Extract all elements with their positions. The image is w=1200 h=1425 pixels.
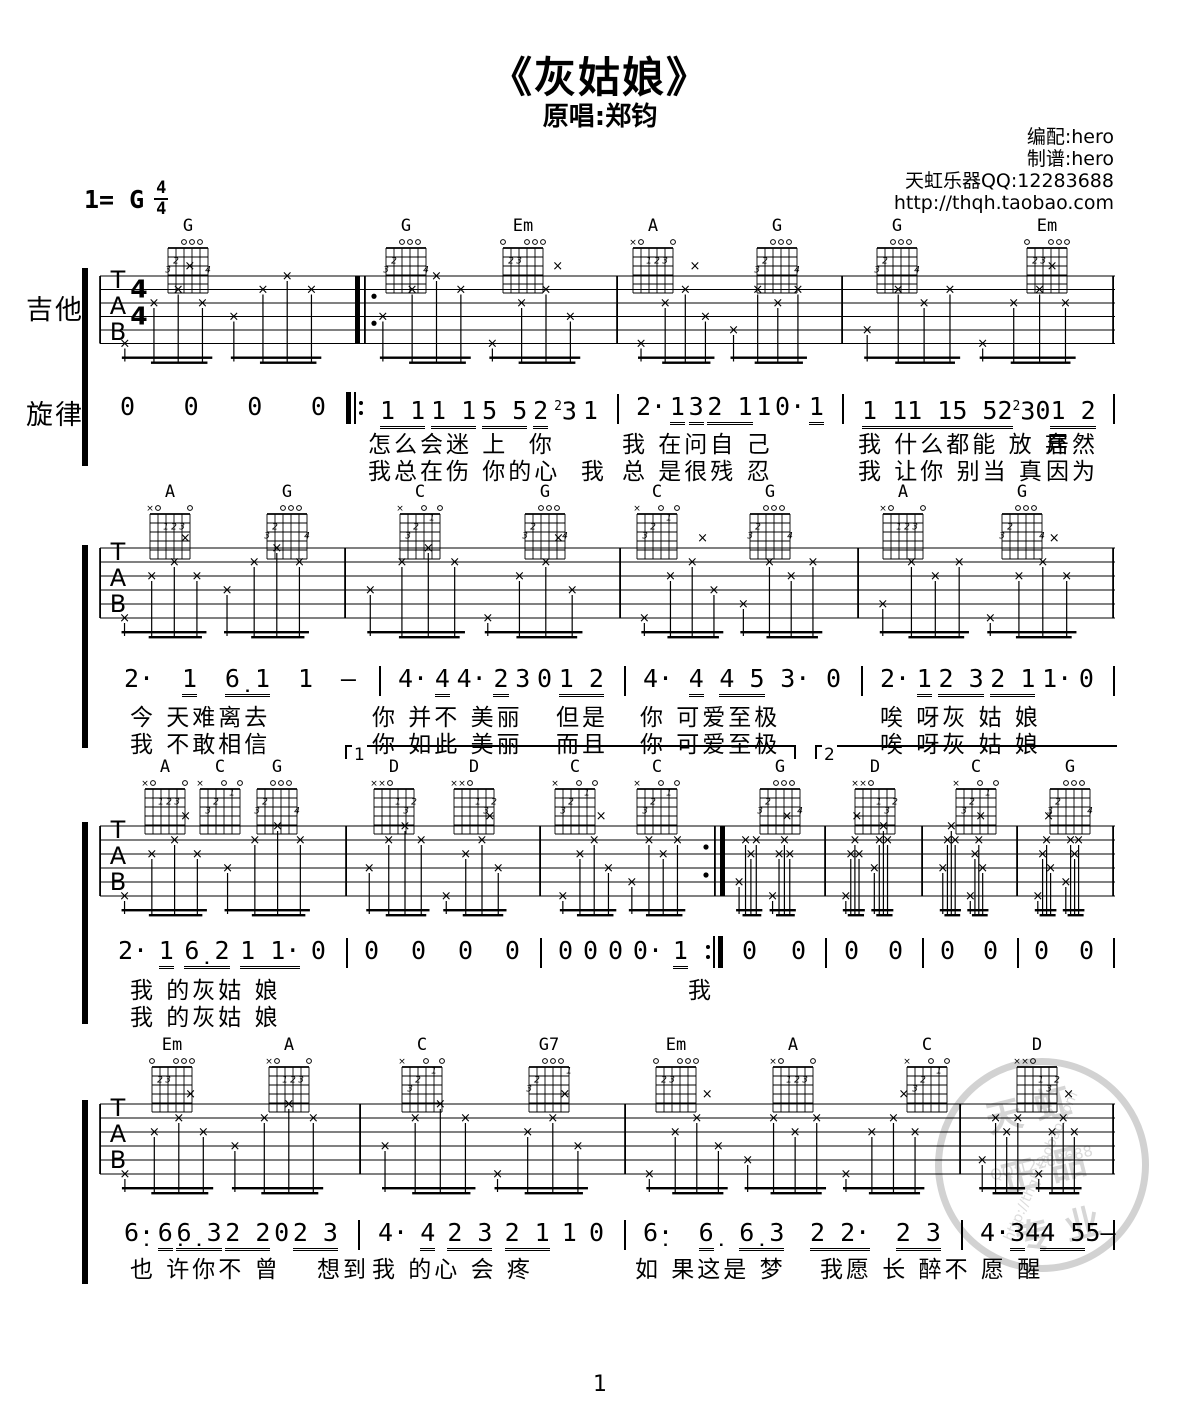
melody-note-group: 0·: [633, 936, 663, 966]
svg-text:×: ×: [633, 779, 641, 789]
svg-text:×: ×: [851, 809, 862, 824]
key-signature: 1= G 4 4: [84, 180, 168, 218]
svg-text:1: 1: [229, 789, 235, 799]
chord-name: A: [261, 1037, 317, 1053]
svg-text:×: ×: [398, 1057, 406, 1067]
melody-barline: [617, 394, 619, 424]
chord-name: D: [847, 759, 903, 775]
svg-text:×: ×: [184, 259, 195, 274]
melody-measure: 4·42 32 110: [366, 1218, 616, 1252]
melody-measure: 6̣·6̣6̣ 32 202 3: [112, 1218, 350, 1252]
melody-barline: [1113, 938, 1115, 968]
svg-text:×: ×: [859, 779, 867, 789]
chord-name: A: [137, 759, 193, 775]
svg-text:×: ×: [903, 1057, 911, 1067]
melody-note-group: 1: [583, 396, 598, 426]
chord-name: C: [899, 1037, 955, 1053]
chord-name: C: [629, 484, 685, 500]
melody-barline: [624, 1220, 626, 1250]
credit-line: 天虹乐器QQ:12283688: [894, 170, 1114, 192]
melody-barline: [1113, 394, 1115, 424]
time-signature: 4 4: [154, 180, 168, 218]
chord-name: C: [394, 1037, 450, 1053]
lyric-line: 如 果这是 梦: [635, 1250, 786, 1284]
melody-measure: 0000: [352, 936, 532, 970]
chord-name: C: [547, 759, 603, 775]
svg-text:×: ×: [185, 1087, 196, 1102]
melody-repeat-start: [346, 392, 363, 424]
melody-note-group: 3: [1010, 1218, 1025, 1251]
melody-note-group: 0: [537, 664, 552, 694]
svg-text:4: 4: [130, 302, 147, 331]
melody-note-group: 2 1: [707, 392, 752, 425]
melody-note-group: 2·: [880, 664, 910, 694]
melody-note-group: 0: [311, 936, 326, 966]
svg-text:A: A: [110, 292, 127, 320]
melody-note-group: 1: [809, 392, 824, 425]
svg-text:×: ×: [975, 809, 986, 824]
melody-note-group: 4 5: [719, 664, 764, 697]
chord-name: C: [948, 759, 1004, 775]
melody-note-group: 4·: [457, 664, 487, 694]
svg-text:×: ×: [697, 531, 708, 546]
melody-note-group: 0: [1034, 936, 1049, 966]
melody-label: 旋律: [26, 393, 84, 432]
melody-note-group: 6̣: [699, 1218, 714, 1251]
melody-note-group: 0: [983, 936, 998, 966]
melody-barline: [825, 938, 827, 968]
chord-name: G: [259, 484, 315, 500]
melody-note-group: 4: [1025, 1218, 1040, 1248]
melody-note-group: 4: [435, 664, 450, 697]
melody-note-group: 2 1: [505, 1218, 550, 1251]
lyric-line: 想到: [317, 1250, 369, 1284]
melody-note-group: 3: [689, 392, 704, 425]
melody-measure: 0000·1: [546, 936, 700, 970]
melody-note-group: 4: [689, 664, 704, 697]
lyric-line: 总 是很残 忍: [622, 452, 773, 486]
melody-note-group: 2 3: [938, 664, 983, 697]
svg-text:×: ×: [551, 779, 559, 789]
melody-measure: 6̣·6̣6̣ 32 2·2 3: [631, 1218, 953, 1252]
melody-note-group: 4: [420, 1218, 435, 1251]
melody-barline: [842, 394, 844, 424]
melody-note-group: 1: [756, 392, 771, 422]
melody-note-group: 3: [515, 664, 530, 694]
svg-text:1: 1: [985, 789, 991, 799]
svg-text:×: ×: [1049, 531, 1060, 546]
melody-measure: 00: [928, 936, 1010, 970]
svg-text:×: ×: [396, 504, 404, 514]
chord-name: A: [142, 484, 198, 500]
chord-name: G: [742, 484, 798, 500]
chord-name: D: [446, 759, 502, 775]
chord-name: Em: [495, 218, 551, 234]
svg-text:×: ×: [180, 809, 191, 824]
svg-text:1: 1: [936, 1067, 942, 1077]
melody-note-group: 1: [562, 1218, 577, 1248]
svg-text:T: T: [110, 1094, 126, 1122]
melody-note-group: 1 1·: [240, 936, 300, 969]
melody-note-group: 0: [826, 664, 841, 694]
svg-text:×: ×: [633, 504, 641, 514]
chord-name: Em: [648, 1037, 704, 1053]
svg-text:×: ×: [879, 504, 887, 514]
page-number: 1: [0, 1372, 1200, 1397]
svg-text:×: ×: [378, 779, 386, 789]
svg-text:1: 1: [666, 514, 672, 524]
chord-name: C: [392, 484, 448, 500]
melody-measure: 2·16̣ 11—: [112, 664, 368, 698]
svg-text:×: ×: [484, 809, 495, 824]
melody-note-group: 1: [298, 664, 313, 694]
melody-note-group: 1: [917, 664, 932, 697]
svg-text:×: ×: [553, 531, 564, 546]
melody-measure: 2·12 32 11·0: [868, 664, 1106, 698]
melody-note-group: 0: [274, 1218, 289, 1248]
melody-barline: [922, 938, 924, 968]
chord-name: G: [1042, 759, 1098, 775]
melody-note-group: 4·: [378, 1218, 408, 1248]
melody-note-group: 0: [311, 392, 326, 422]
lyric-line: 我 的灰姑 娘: [130, 998, 281, 1032]
tab-staff: TAB××××××××××××××××××××××××××××××××××××: [0, 524, 1200, 650]
melody-measure: 2·16̣ 21 1·0: [106, 936, 338, 970]
melody-note-group: 6̣: [158, 1218, 173, 1251]
volta-bracket-1: 1: [345, 745, 796, 759]
tab-staff: TAB×××××××××××××××××××××××××××××××××××××…: [0, 802, 1200, 928]
melody-note-group: 0: [1079, 936, 1094, 966]
lyric-line: 我: [688, 971, 714, 1005]
melody-note-group: 0: [505, 936, 520, 966]
melody-note-group: —: [341, 664, 356, 694]
melody-note-group: 2·: [118, 936, 148, 966]
lyric-line: 因为: [1046, 452, 1098, 486]
melody-note-group: 2 2: [225, 1218, 270, 1251]
melody-note-group: 2·: [636, 392, 666, 422]
melody-barline: [346, 938, 348, 968]
svg-text:×: ×: [265, 1057, 273, 1067]
chord-name: Em: [1019, 218, 1075, 234]
chord-name: G: [994, 484, 1050, 500]
melody-note-group: 6̣·: [124, 1218, 154, 1248]
chord-name: C: [629, 759, 685, 775]
svg-text:A: A: [110, 564, 127, 592]
svg-text:1: 1: [429, 514, 435, 524]
svg-text:×: ×: [629, 238, 637, 248]
melody-note-group: 0·: [775, 392, 805, 422]
lyric-line: 我总在伤 你的心 我: [368, 452, 607, 486]
melody-note-group: 0: [184, 392, 199, 422]
credit-line: http://thqh.taobao.com: [894, 192, 1114, 214]
svg-text:×: ×: [702, 1087, 713, 1102]
lyric-line: 我 的心 会 疼: [372, 1250, 533, 1284]
chord-name: G: [249, 759, 305, 775]
chord-name: G: [752, 759, 808, 775]
svg-text:A: A: [110, 842, 127, 870]
chord-name: Em: [144, 1037, 200, 1053]
svg-text:×: ×: [1021, 1057, 1029, 1067]
chord-name: G: [378, 218, 434, 234]
chord-name: A: [875, 484, 931, 500]
melody-barline: [379, 666, 381, 696]
melody-note-group: 1: [673, 936, 688, 969]
melody-barline: [961, 1220, 963, 1250]
svg-text:A: A: [110, 1120, 127, 1148]
key-label: 1= G: [84, 185, 144, 214]
credits-block: 编配:hero制谱:hero天虹乐器QQ:12283688http://thqh…: [894, 126, 1114, 214]
melody-note-group: 4·: [643, 664, 673, 694]
chord-name: A: [765, 1037, 821, 1053]
melody-note-group: 0: [608, 936, 623, 966]
melody-measure: 4·344 55—: [968, 1218, 1106, 1252]
melody-note-group: 2 3: [293, 1218, 338, 1251]
melody-note-group: 2 3: [447, 1218, 492, 1251]
melody-barline: [1017, 938, 1019, 968]
melody-barline: [1113, 1220, 1115, 1250]
svg-text:×: ×: [952, 779, 960, 789]
time-bottom: 4: [156, 201, 166, 218]
chord-name: D: [1009, 1037, 1065, 1053]
melody-note-group: 0: [411, 936, 426, 966]
melody-note-group: 6̣ 1: [225, 664, 270, 697]
melody-note-group: 0: [458, 936, 473, 966]
melody-note-group: 0: [844, 936, 859, 966]
svg-text:×: ×: [450, 779, 458, 789]
svg-text:T: T: [110, 266, 126, 294]
svg-text:×: ×: [141, 779, 149, 789]
melody-measure: 1 11 15 52231: [368, 392, 610, 426]
lyric-line: 我 让你 别当 真: [858, 452, 1045, 486]
melody-note-group: 1·: [1042, 664, 1072, 694]
melody-note-group: 0: [589, 1218, 604, 1248]
svg-text:×: ×: [1047, 259, 1058, 274]
svg-text:×: ×: [1013, 1057, 1021, 1067]
melody-note-group: 0: [120, 392, 135, 422]
melody-note-group: 0: [558, 936, 573, 966]
svg-text:×: ×: [782, 809, 793, 824]
melody-note-group: 2·: [124, 664, 154, 694]
lyric-line: 我 不敢相信: [130, 725, 270, 759]
melody-note-group: 23: [554, 392, 577, 426]
chord-name: G7: [521, 1037, 577, 1053]
melody-note-group: 0: [1035, 396, 1050, 426]
melody-note-group: 6̣ 3: [176, 1218, 221, 1251]
melody-note-group: 0: [742, 936, 757, 966]
svg-text:×: ×: [370, 779, 378, 789]
melody-barline: [358, 1220, 360, 1250]
chord-name: D: [366, 759, 422, 775]
lyric-line: 我愿 长 醉不 愿 醒: [820, 1250, 1043, 1284]
volta-bracket-2: 2: [815, 745, 1117, 759]
melody-measure: 4·44 53·0: [631, 664, 853, 698]
tab-staff: TAB44×××××××××××××××××××××××××××××××××××…: [0, 252, 1200, 378]
svg-text:×: ×: [1063, 1087, 1074, 1102]
svg-text:×: ×: [559, 1087, 570, 1102]
melody-note-group: 0: [888, 936, 903, 966]
svg-text:×: ×: [458, 779, 466, 789]
time-top: 4: [156, 180, 166, 197]
svg-text:×: ×: [552, 259, 563, 274]
svg-text:×: ×: [596, 809, 607, 824]
svg-text:T: T: [110, 538, 126, 566]
melody-note-group: 2 3: [896, 1218, 941, 1251]
melody-note-group: 0: [791, 936, 806, 966]
melody-measure: 00: [1022, 936, 1106, 970]
chord-name: G: [869, 218, 925, 234]
svg-text:×: ×: [180, 531, 191, 546]
svg-text:×: ×: [690, 259, 701, 274]
melody-measure: 00: [832, 936, 915, 970]
svg-text:×: ×: [1043, 809, 1054, 824]
melody-note-group: 6̣ 2: [184, 936, 229, 969]
sheet-music-page: 天虹 正品 专业 QQ:12283688 http://thqh.taobao.…: [0, 0, 1200, 1425]
chord-name: C: [192, 759, 248, 775]
melody-note-group: 4·: [398, 664, 428, 694]
chord-name: A: [625, 218, 681, 234]
melody-measure: 2·132 110·1: [624, 392, 836, 426]
melody-repeat-end: [706, 936, 723, 968]
melody-measure: 0000: [108, 392, 338, 426]
volta-label: 2: [822, 745, 837, 765]
melody-note-group: 1: [159, 936, 174, 969]
melody-note-group: 2: [493, 664, 508, 697]
credit-line: 制谱:hero: [894, 148, 1114, 170]
chord-name: G: [160, 218, 216, 234]
svg-text:×: ×: [769, 1057, 777, 1067]
melody-note-group: 1 2: [559, 664, 604, 697]
melody-measure: 1 11 15 522301 2: [850, 392, 1106, 426]
melody-note-group: 1: [670, 392, 685, 425]
credit-line: 编配:hero: [894, 126, 1114, 148]
melody-note-group: 23: [1013, 392, 1036, 426]
melody-note-group: 1: [182, 664, 197, 697]
melody-barline: [1113, 666, 1115, 696]
melody-note-group: 2 2·: [810, 1218, 870, 1251]
melody-measure: 4·44·2301 2: [386, 664, 616, 698]
melody-note-group: 0: [364, 936, 379, 966]
melody-note-group: 2 1: [990, 664, 1035, 697]
melody-barline: [861, 666, 863, 696]
melody-barline: [540, 938, 542, 968]
melody-note-group: 0: [583, 936, 598, 966]
melody-note-group: 3·: [780, 664, 810, 694]
melody-note-group: 6̣ 3: [739, 1218, 784, 1251]
svg-text:×: ×: [851, 779, 859, 789]
svg-text:×: ×: [146, 504, 154, 514]
svg-text:1: 1: [666, 789, 672, 799]
melody-note-group: 4·: [980, 1218, 1010, 1248]
svg-text:4: 4: [130, 275, 147, 304]
volta-label: 1: [352, 745, 367, 765]
svg-text:1: 1: [566, 1067, 572, 1077]
svg-text:×: ×: [898, 1087, 909, 1102]
melody-note-group: 5: [1085, 1218, 1100, 1248]
melody-barline: [624, 666, 626, 696]
tab-staff: TAB×××××××××××××××××××××××××××××××××××××…: [0, 1080, 1200, 1206]
svg-text:T: T: [110, 816, 126, 844]
svg-text:1: 1: [431, 1067, 437, 1077]
melody-note-group: 0: [247, 392, 262, 422]
melody-note-group: 0: [1079, 664, 1094, 694]
svg-text:×: ×: [196, 779, 204, 789]
melody-note-group: 4 5: [1040, 1218, 1085, 1251]
melody-note-group: 0: [940, 936, 955, 966]
chord-name: G: [517, 484, 573, 500]
lyric-line: 也 许你不 曾: [130, 1250, 281, 1284]
melody-measure: 00: [730, 936, 818, 970]
melody-note-group: 6̣·: [643, 1218, 673, 1248]
svg-text:1: 1: [584, 789, 590, 799]
chord-name: G: [749, 218, 805, 234]
